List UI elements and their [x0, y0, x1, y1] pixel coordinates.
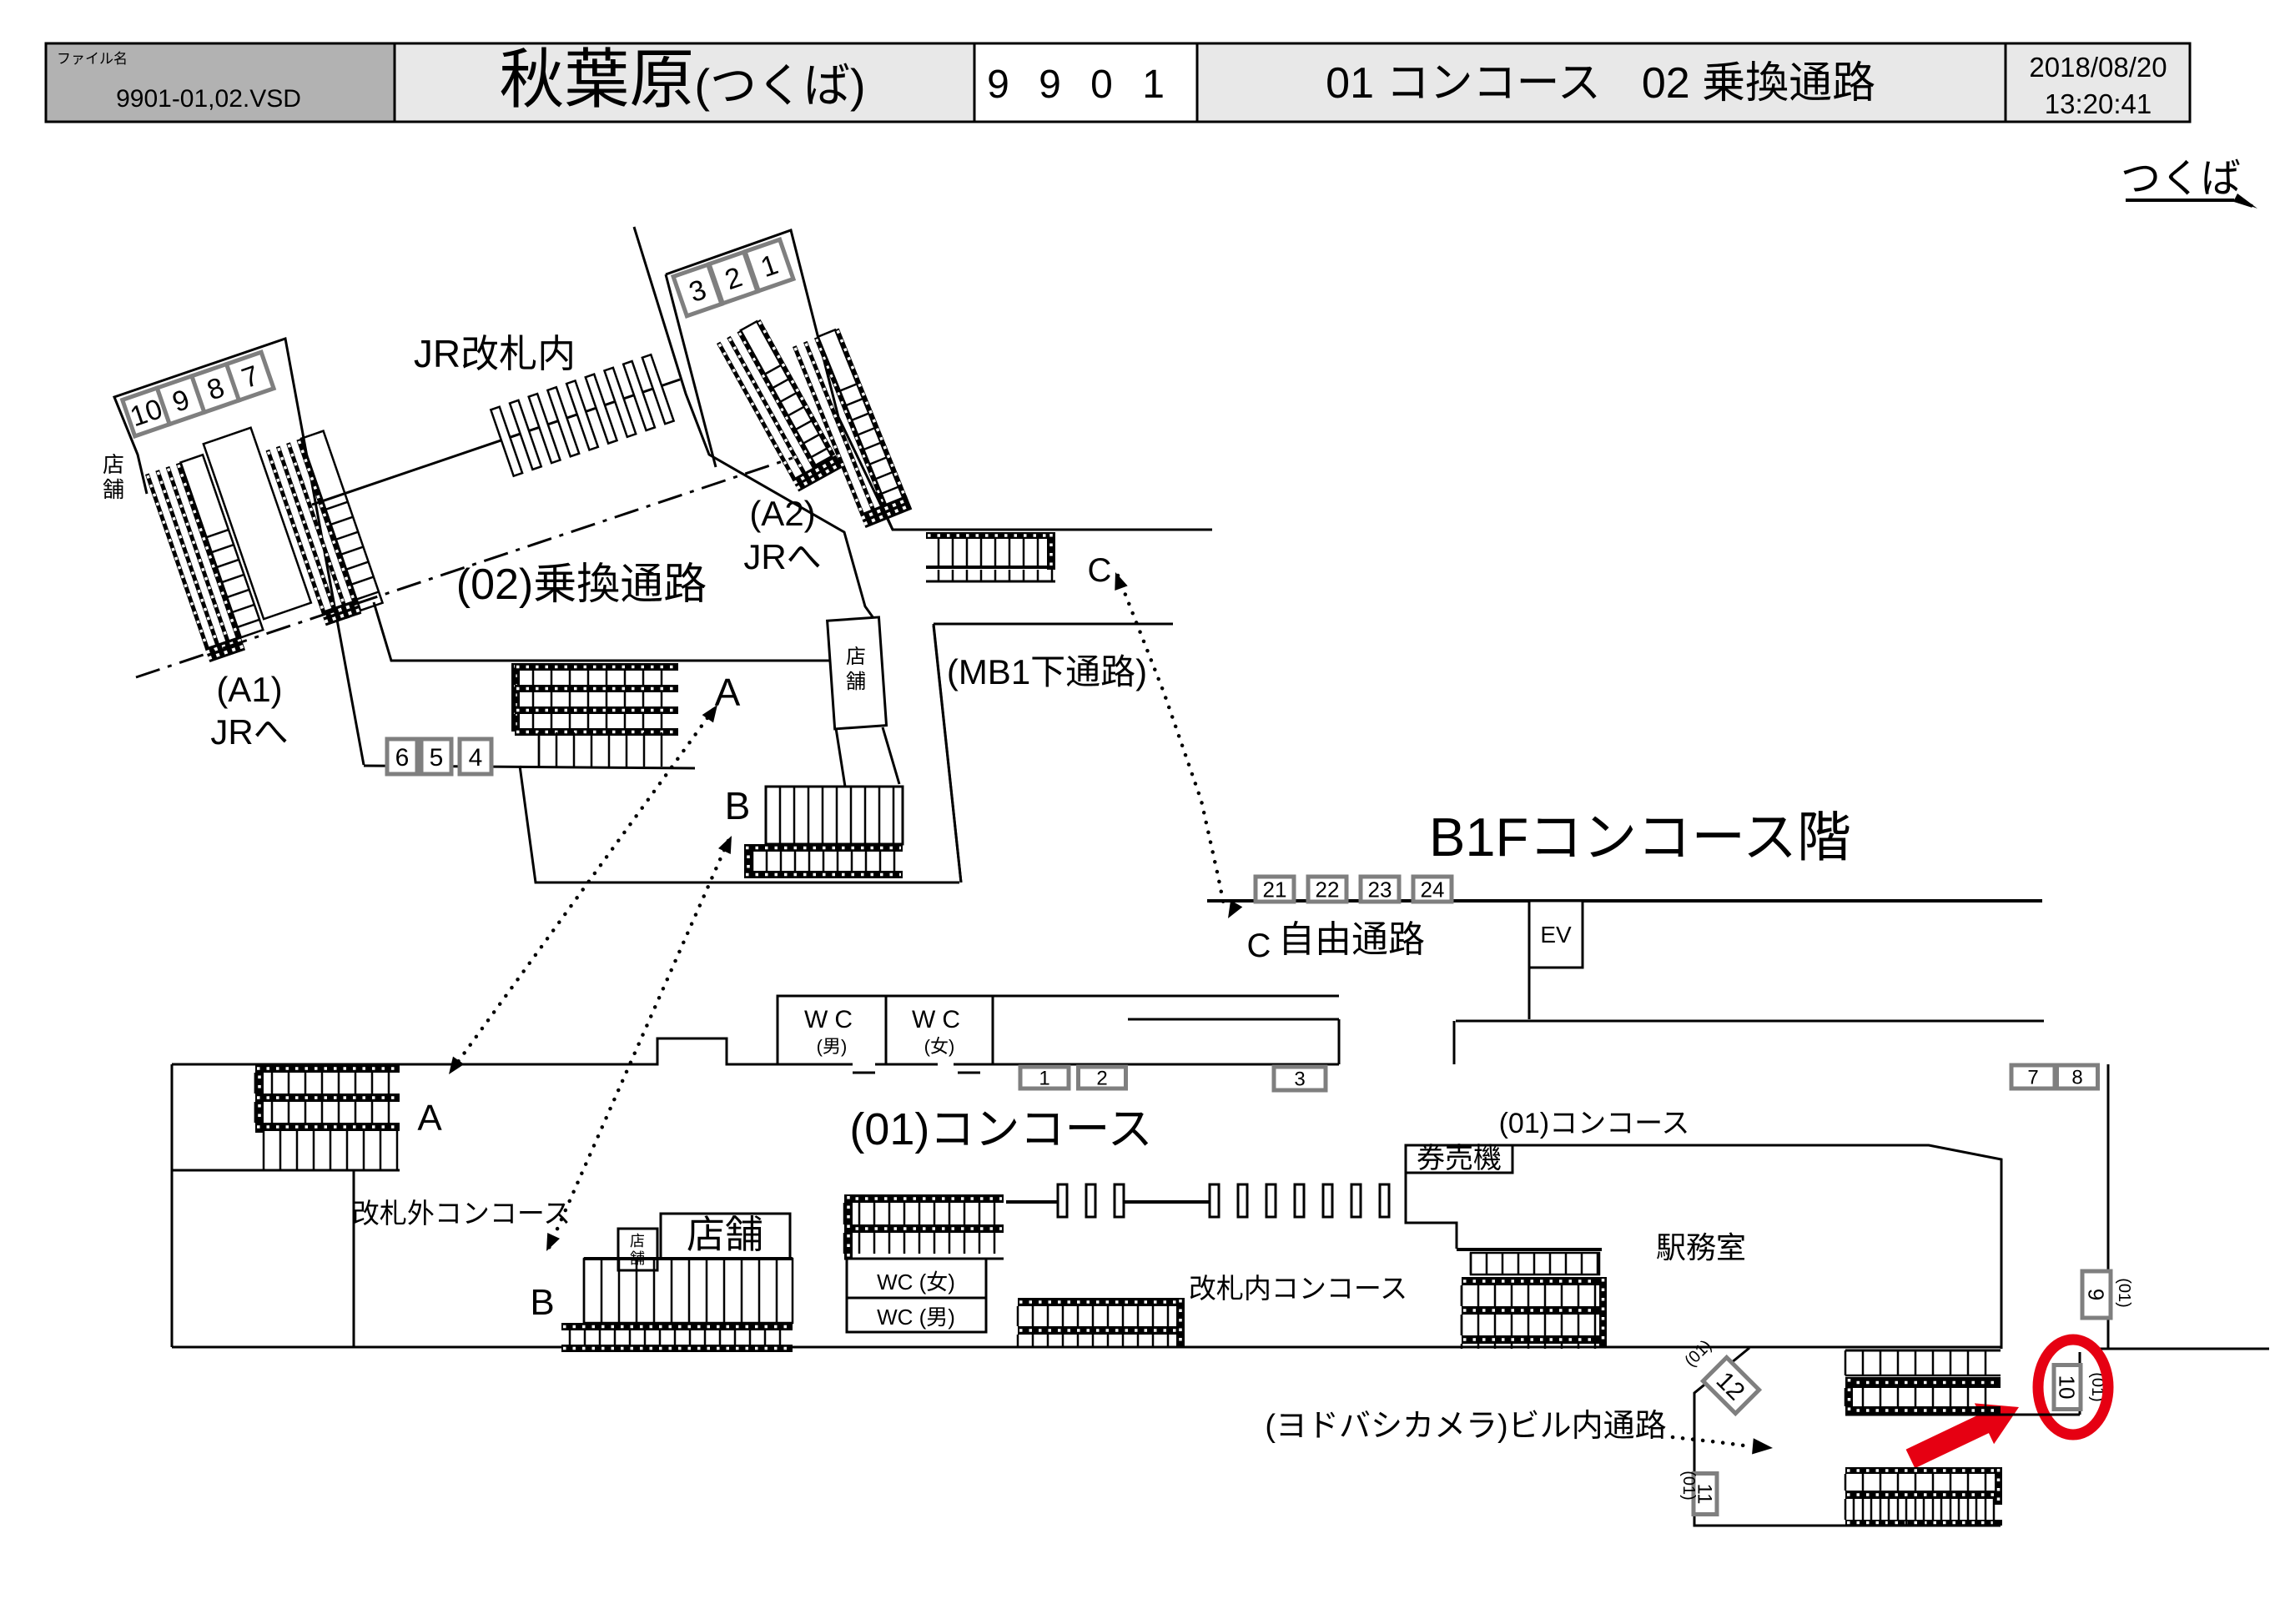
- svg-text:改札外コンコース: 改札外コンコース: [352, 1198, 571, 1229]
- svg-text:3: 3: [1294, 1068, 1305, 1091]
- svg-text:9 9 0 1: 9 9 0 1: [987, 63, 1174, 107]
- svg-text:店: 店: [630, 1233, 645, 1249]
- svg-text:6: 6: [395, 744, 410, 772]
- svg-text:WC: WC: [912, 1006, 967, 1033]
- svg-text:01 コンコース: 01 コンコース: [1326, 59, 1601, 108]
- svg-text:WC (女): WC (女): [877, 1270, 955, 1295]
- svg-text:(01): (01): [2115, 1278, 2133, 1308]
- svg-text:(女): (女): [924, 1036, 955, 1057]
- svg-text:(01)コンコース: (01)コンコース: [849, 1104, 1152, 1154]
- svg-text:24: 24: [1421, 877, 1445, 902]
- svg-text:A: A: [417, 1098, 442, 1139]
- svg-text:(02)乗換通路: (02)乗換通路: [456, 561, 707, 609]
- svg-text:JRへ: JRへ: [210, 712, 288, 752]
- svg-text:9901-01,02.VSD: 9901-01,02.VSD: [116, 85, 301, 113]
- svg-text:2: 2: [1096, 1068, 1107, 1090]
- svg-text:舗: 舗: [846, 671, 866, 693]
- svg-text:23: 23: [1368, 877, 1392, 902]
- svg-text:(ヨドバシカメラ)ビル内通路: (ヨドバシカメラ)ビル内通路: [1265, 1409, 1666, 1444]
- svg-text:JRへ: JRへ: [743, 537, 821, 576]
- svg-text:(A2): (A2): [749, 494, 815, 533]
- svg-text:ファイル名: ファイル名: [57, 51, 128, 67]
- svg-text:EV: EV: [1540, 922, 1572, 948]
- svg-text:4: 4: [469, 744, 483, 772]
- svg-text:舗: 舗: [103, 477, 124, 502]
- svg-text:B: B: [725, 784, 751, 827]
- svg-text:21: 21: [1263, 877, 1287, 902]
- svg-text:つくば: つくば: [2121, 157, 2241, 201]
- svg-text:(01)コンコース: (01)コンコース: [1499, 1108, 1690, 1139]
- svg-text:WC: WC: [804, 1006, 859, 1033]
- svg-text:B: B: [530, 1282, 554, 1323]
- svg-text:8: 8: [2071, 1067, 2082, 1089]
- svg-text:C: C: [1088, 552, 1112, 589]
- svg-text:(MB1下通路): (MB1下通路): [947, 652, 1147, 691]
- svg-text:13:20:41: 13:20:41: [2045, 88, 2152, 119]
- svg-text:WC (男): WC (男): [877, 1305, 955, 1330]
- svg-text:B1Fコンコース階: B1Fコンコース階: [1429, 807, 1851, 867]
- svg-text:A: A: [715, 671, 741, 714]
- svg-text:JR改札内: JR改札内: [414, 332, 576, 375]
- svg-text:券売機: 券売機: [1417, 1143, 1502, 1174]
- svg-text:自由通路: 自由通路: [1278, 919, 1425, 960]
- svg-text:店舗: 店舗: [687, 1213, 763, 1256]
- svg-text:02 乗換通路: 02 乗換通路: [1642, 59, 1875, 108]
- svg-text:店: 店: [846, 646, 866, 668]
- svg-text:(男): (男): [817, 1036, 848, 1057]
- svg-text:改札内コンコース: 改札内コンコース: [1189, 1273, 1407, 1304]
- svg-text:9: 9: [2084, 1289, 2109, 1300]
- svg-text:C: C: [1247, 928, 1271, 964]
- svg-text:1: 1: [1039, 1068, 1049, 1090]
- svg-text:10: 10: [2055, 1375, 2080, 1400]
- svg-text:(01): (01): [1679, 1471, 1698, 1501]
- svg-text:駅務室: 駅務室: [1656, 1230, 1746, 1265]
- svg-text:店: 店: [103, 452, 124, 477]
- svg-text:2018/08/20: 2018/08/20: [2029, 52, 2167, 83]
- svg-text:7: 7: [2027, 1067, 2038, 1089]
- svg-text:22: 22: [1316, 877, 1340, 902]
- svg-text:(A1): (A1): [216, 670, 282, 709]
- svg-text:5: 5: [430, 744, 444, 772]
